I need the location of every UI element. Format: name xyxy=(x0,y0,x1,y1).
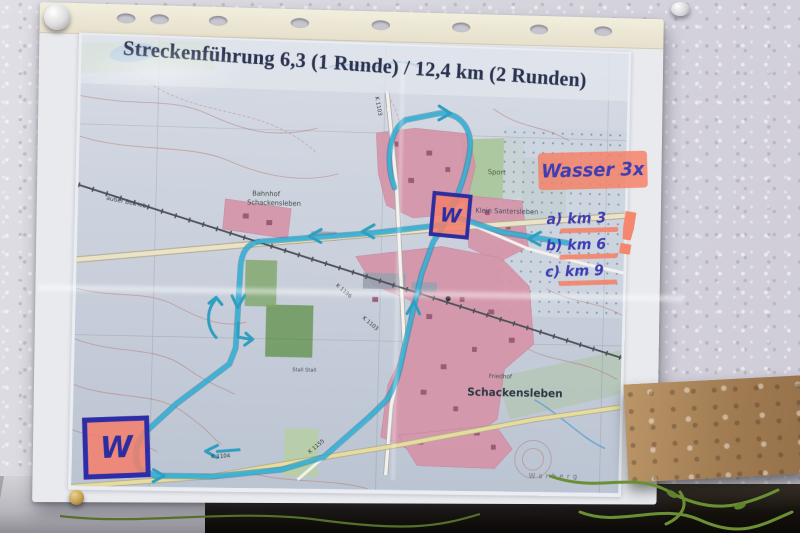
map-label-bahnhof: Bahnhof xyxy=(252,190,281,199)
map-label-friedhof: Friedhof xyxy=(489,373,513,380)
map-label-schackensleben: Schackensleben xyxy=(467,386,563,401)
punch-hole xyxy=(117,13,136,23)
map-label-bahnhof-2: Schackensleben xyxy=(247,198,301,207)
map-label-sport: Sport xyxy=(488,167,506,176)
punch-hole xyxy=(209,16,228,26)
punch-hole xyxy=(452,22,470,32)
km-mark-b-text: b) km 6 xyxy=(546,235,607,254)
km-mark-c-text: c) km 9 xyxy=(545,261,604,280)
plastic-sleeve: Bahnhof Schackensleben außer Betrieb Kle… xyxy=(32,2,664,504)
punch-hole xyxy=(150,14,169,24)
pushpin-top-right xyxy=(671,2,690,16)
vine-stems xyxy=(540,450,800,533)
map-label-stall: Stall Stall xyxy=(292,367,316,373)
pink-underline xyxy=(560,227,619,234)
punch-hole xyxy=(594,26,612,36)
road-label-k1104: K 1104 xyxy=(211,453,231,460)
map-label-klein-santersleben: Klein Santersleben xyxy=(475,206,538,217)
punch-hole xyxy=(372,20,390,30)
paper-map: Bahnhof Schackensleben außer Betrieb Kle… xyxy=(68,33,631,497)
km-mark-a-text: a) km 3 xyxy=(546,209,606,228)
pink-underline xyxy=(558,279,617,286)
water-station-marker-2: W xyxy=(82,415,151,479)
punch-hole xyxy=(530,24,548,34)
punch-hole xyxy=(291,18,310,28)
pushpin-top-left xyxy=(44,4,70,30)
vine-stem-lower xyxy=(60,496,480,533)
water-station-marker-1: W xyxy=(429,191,473,240)
wasser-note: Wasser 3x xyxy=(538,151,648,191)
photo-of-race-route-poster: Bahnhof Schackensleben außer Betrieb Kle… xyxy=(0,0,800,533)
